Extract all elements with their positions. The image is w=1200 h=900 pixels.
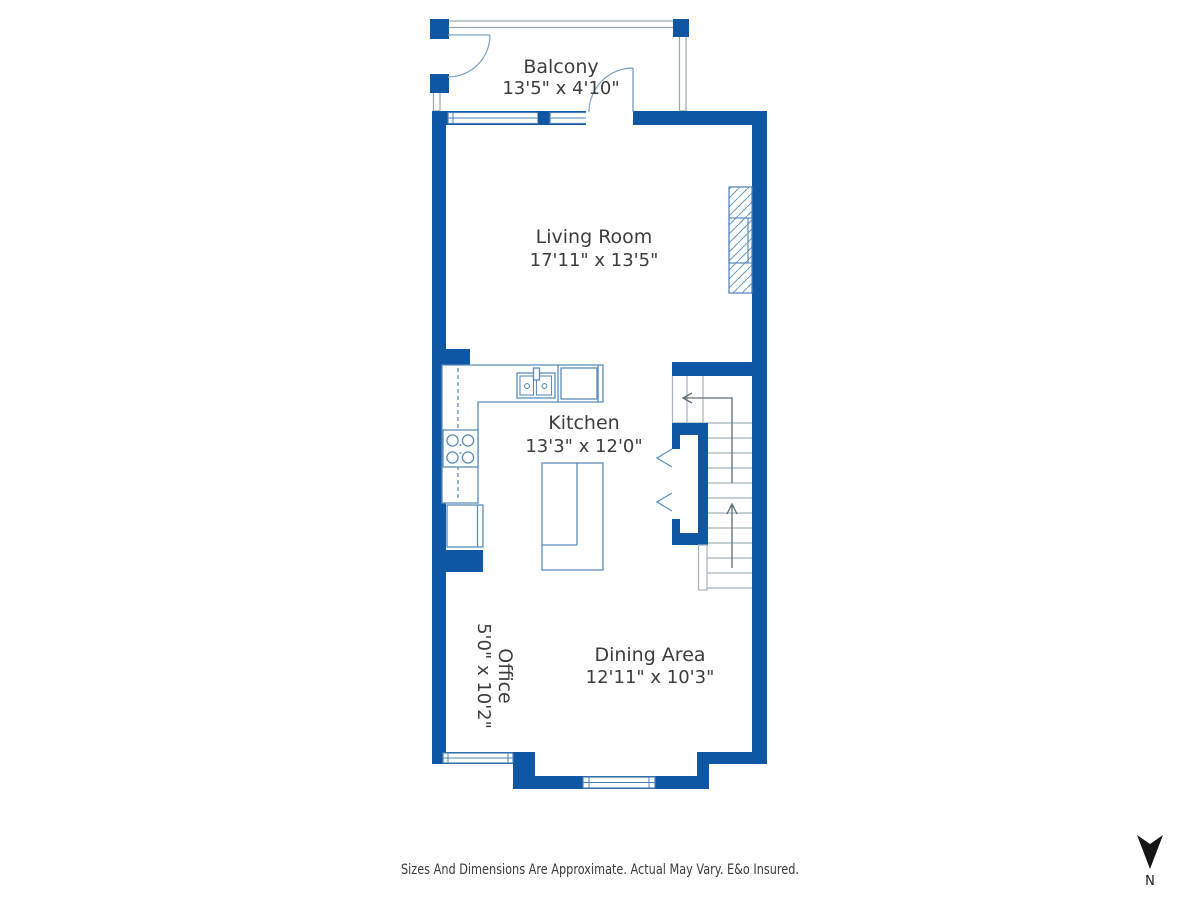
kitchen-dims: 13'3" x 12'0" (525, 436, 642, 457)
wall-stub-kitchen-bottom (432, 550, 483, 572)
floorplan-drawing: Balcony 13'5" x 4'10" Living Room 17'11"… (0, 0, 1200, 900)
kitchen-sink (517, 368, 555, 398)
disclaimer-text: Sizes And Dimensions Are Approximate. Ac… (401, 862, 799, 878)
closet-door-marks (657, 449, 672, 511)
dining-area-label: Dining Area (594, 644, 705, 666)
balcony-post-top-left (430, 19, 449, 39)
north-compass: N (1137, 835, 1163, 889)
north-arrow-icon (1137, 835, 1163, 869)
balcony-rail-top (433, 21, 687, 28)
window-living-right (550, 113, 587, 124)
balcony-post-bottom-left (430, 74, 449, 93)
wall-stub-kitchen-top (432, 349, 470, 367)
refrigerator (447, 505, 483, 547)
living-room-dims: 17'11" x 13'5" (530, 250, 659, 271)
balcony-gate-door (448, 35, 490, 77)
kitchen-label: Kitchen (548, 412, 619, 434)
window-living-left (448, 113, 538, 124)
balcony-label: Balcony (523, 56, 598, 78)
living-room-label: Living Room (536, 226, 653, 248)
dining-area-dims: 12'11" x 10'3" (586, 667, 715, 688)
fireplace (729, 187, 752, 293)
window-mullion (538, 112, 550, 126)
north-label: N (1145, 874, 1155, 889)
stair-rail-strip (699, 545, 708, 590)
staircase (657, 376, 752, 590)
stair-landing-lines (672, 376, 752, 423)
wall-right (752, 111, 767, 764)
office-dims: 5'0" x 10'2" (473, 623, 494, 729)
office-label: Office (494, 648, 516, 703)
floorplan-canvas: Balcony 13'5" x 4'10" Living Room 17'11"… (0, 0, 1200, 900)
stove (443, 430, 478, 467)
wall-stair-top (672, 362, 752, 376)
balcony-post-top-right (673, 19, 689, 37)
wall-bay-step-left (513, 752, 535, 789)
kitchen-island (542, 463, 603, 570)
window-dining (583, 777, 655, 788)
balcony-dims: 13'5" x 4'10" (502, 78, 619, 99)
window-office (443, 753, 513, 763)
balcony-rail-right (680, 24, 687, 111)
sink-faucet (534, 368, 540, 380)
kitchen-fixtures (442, 365, 603, 570)
stairwell-wall (672, 423, 708, 545)
wall-bottom-right (697, 752, 767, 764)
stair-treads (707, 438, 752, 588)
